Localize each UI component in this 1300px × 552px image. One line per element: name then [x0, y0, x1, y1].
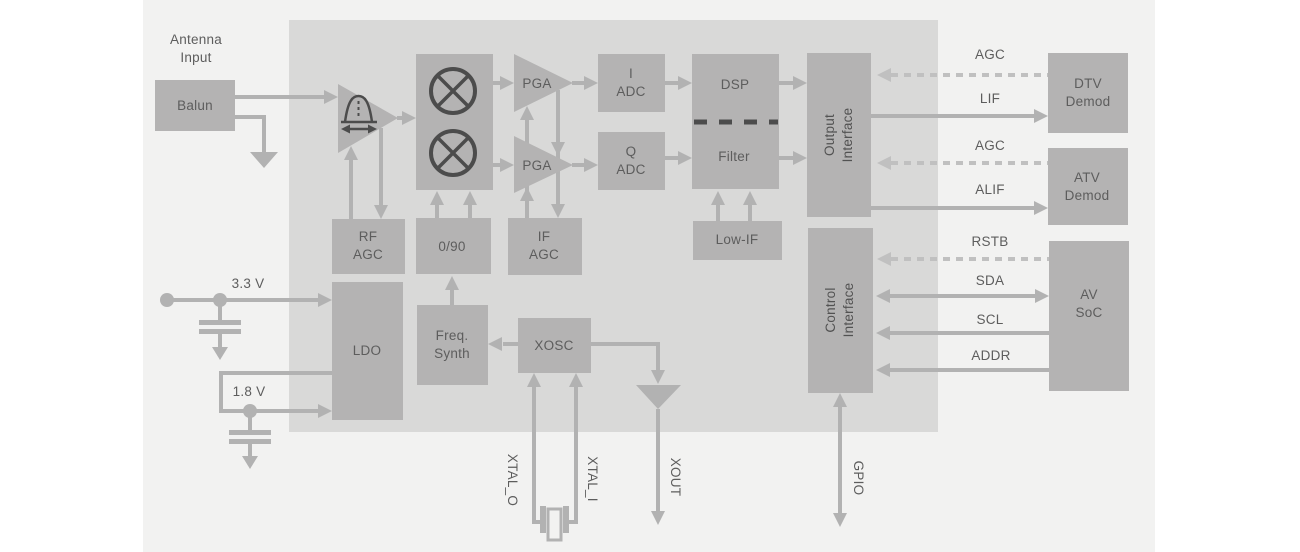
- capacitor-icon: [199, 300, 241, 360]
- control-interface-block: [808, 228, 873, 393]
- if-agc-block: [508, 218, 582, 275]
- adc-q-block: [598, 132, 665, 190]
- adc-i-block: [598, 54, 665, 112]
- balun-block: [155, 80, 235, 131]
- diagram-graphics: [0, 0, 1300, 552]
- crystal-icon: [540, 506, 569, 540]
- atv-demod-block: [1048, 148, 1128, 225]
- capacitor-icon: [229, 411, 271, 469]
- low-if-block: [693, 221, 782, 260]
- ground-icon: [242, 456, 258, 469]
- av-soc-block: [1049, 241, 1129, 391]
- freq-synth-block: [417, 305, 488, 385]
- xosc-block: [518, 318, 591, 373]
- rf-agc-block: [332, 219, 405, 274]
- wire-balun-ground: [235, 117, 278, 168]
- ground-icon: [250, 152, 278, 168]
- mixer-block: [416, 54, 493, 190]
- block-diagram: Antenna Input Balun PGA PGA I ADC Q ADC …: [0, 0, 1300, 552]
- ldo-block: [332, 282, 403, 420]
- phase-0-90-block: [416, 218, 491, 274]
- dtv-demod-block: [1048, 53, 1128, 133]
- ground-icon: [212, 347, 228, 360]
- output-interface-block: [807, 53, 871, 217]
